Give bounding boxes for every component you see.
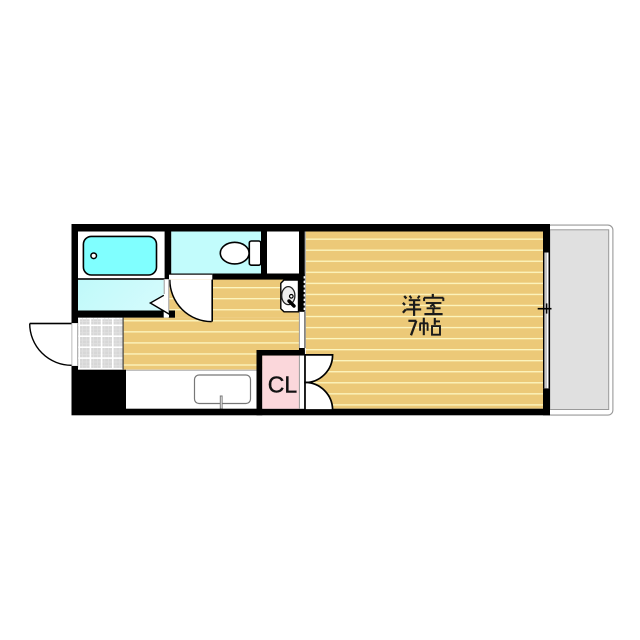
svg-text:CL: CL [268, 372, 298, 398]
